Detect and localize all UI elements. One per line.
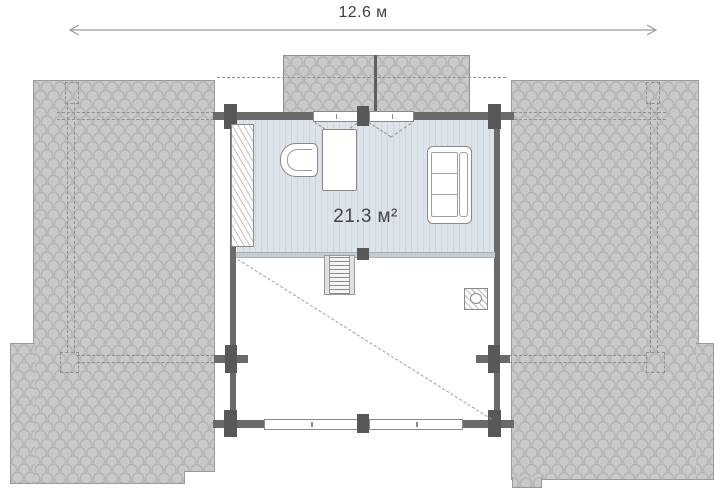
window-top-left (313, 111, 358, 122)
chimney-flue-circle (470, 293, 482, 304)
dimension-label: 12.6 м (70, 4, 656, 22)
floor-plan: 12.6 м 21.3 м² (0, 0, 722, 502)
wardrobe (231, 124, 254, 247)
roof-right (511, 80, 699, 480)
hidden-wall-vertical-left (67, 102, 75, 353)
hidden-wall-mid-left (77, 355, 214, 363)
sofa-backrest (459, 152, 468, 217)
armchair-seat (287, 149, 312, 171)
post-bottom-center (357, 414, 369, 433)
post-top-right (488, 104, 501, 129)
window-tick (416, 422, 418, 427)
sofa-cushion-line (432, 173, 457, 174)
roof-right-extension (696, 343, 714, 480)
armchair (280, 143, 318, 177)
hidden-post-bottom-right (646, 352, 665, 373)
hidden-wall-top-left (57, 112, 214, 120)
chimney (464, 288, 488, 310)
post-mid-right (488, 345, 500, 373)
roof-left-notch (184, 471, 215, 484)
hidden-wall-mid-right (509, 355, 646, 363)
wall-right (494, 118, 500, 422)
post-mid-left (225, 345, 237, 373)
hidden-post-top-right (646, 82, 660, 104)
dormer-right-panel (375, 55, 470, 115)
stairs-stringer-right (349, 256, 354, 294)
stairs (324, 255, 355, 295)
hidden-post-top-left (65, 82, 79, 104)
void-diagonal-line (237, 259, 491, 420)
post-bottom-right (488, 410, 501, 437)
dimension-line (64, 22, 662, 38)
roof-right-step (512, 477, 542, 488)
post-divider-center (357, 248, 369, 260)
window-tick (392, 114, 394, 119)
sofa-cushion-line (432, 194, 457, 195)
hidden-ridge-line (217, 77, 506, 78)
sofa (427, 146, 472, 224)
hidden-wall-vertical-right (650, 102, 658, 353)
dormer-ridge (374, 55, 377, 113)
window-top-right (369, 111, 414, 122)
window-bottom-left (264, 419, 358, 430)
post-top-center (357, 106, 369, 126)
post-bottom-left (224, 410, 237, 437)
window-tick (336, 114, 338, 119)
window-bottom-right (369, 419, 463, 430)
hidden-wall-top-right (509, 112, 666, 120)
roof-left-extension (10, 343, 35, 484)
window-tick (311, 422, 313, 427)
desk (322, 129, 357, 191)
sofa-seats (431, 152, 458, 217)
stairs-treads (330, 257, 349, 294)
roof-left (33, 80, 215, 484)
